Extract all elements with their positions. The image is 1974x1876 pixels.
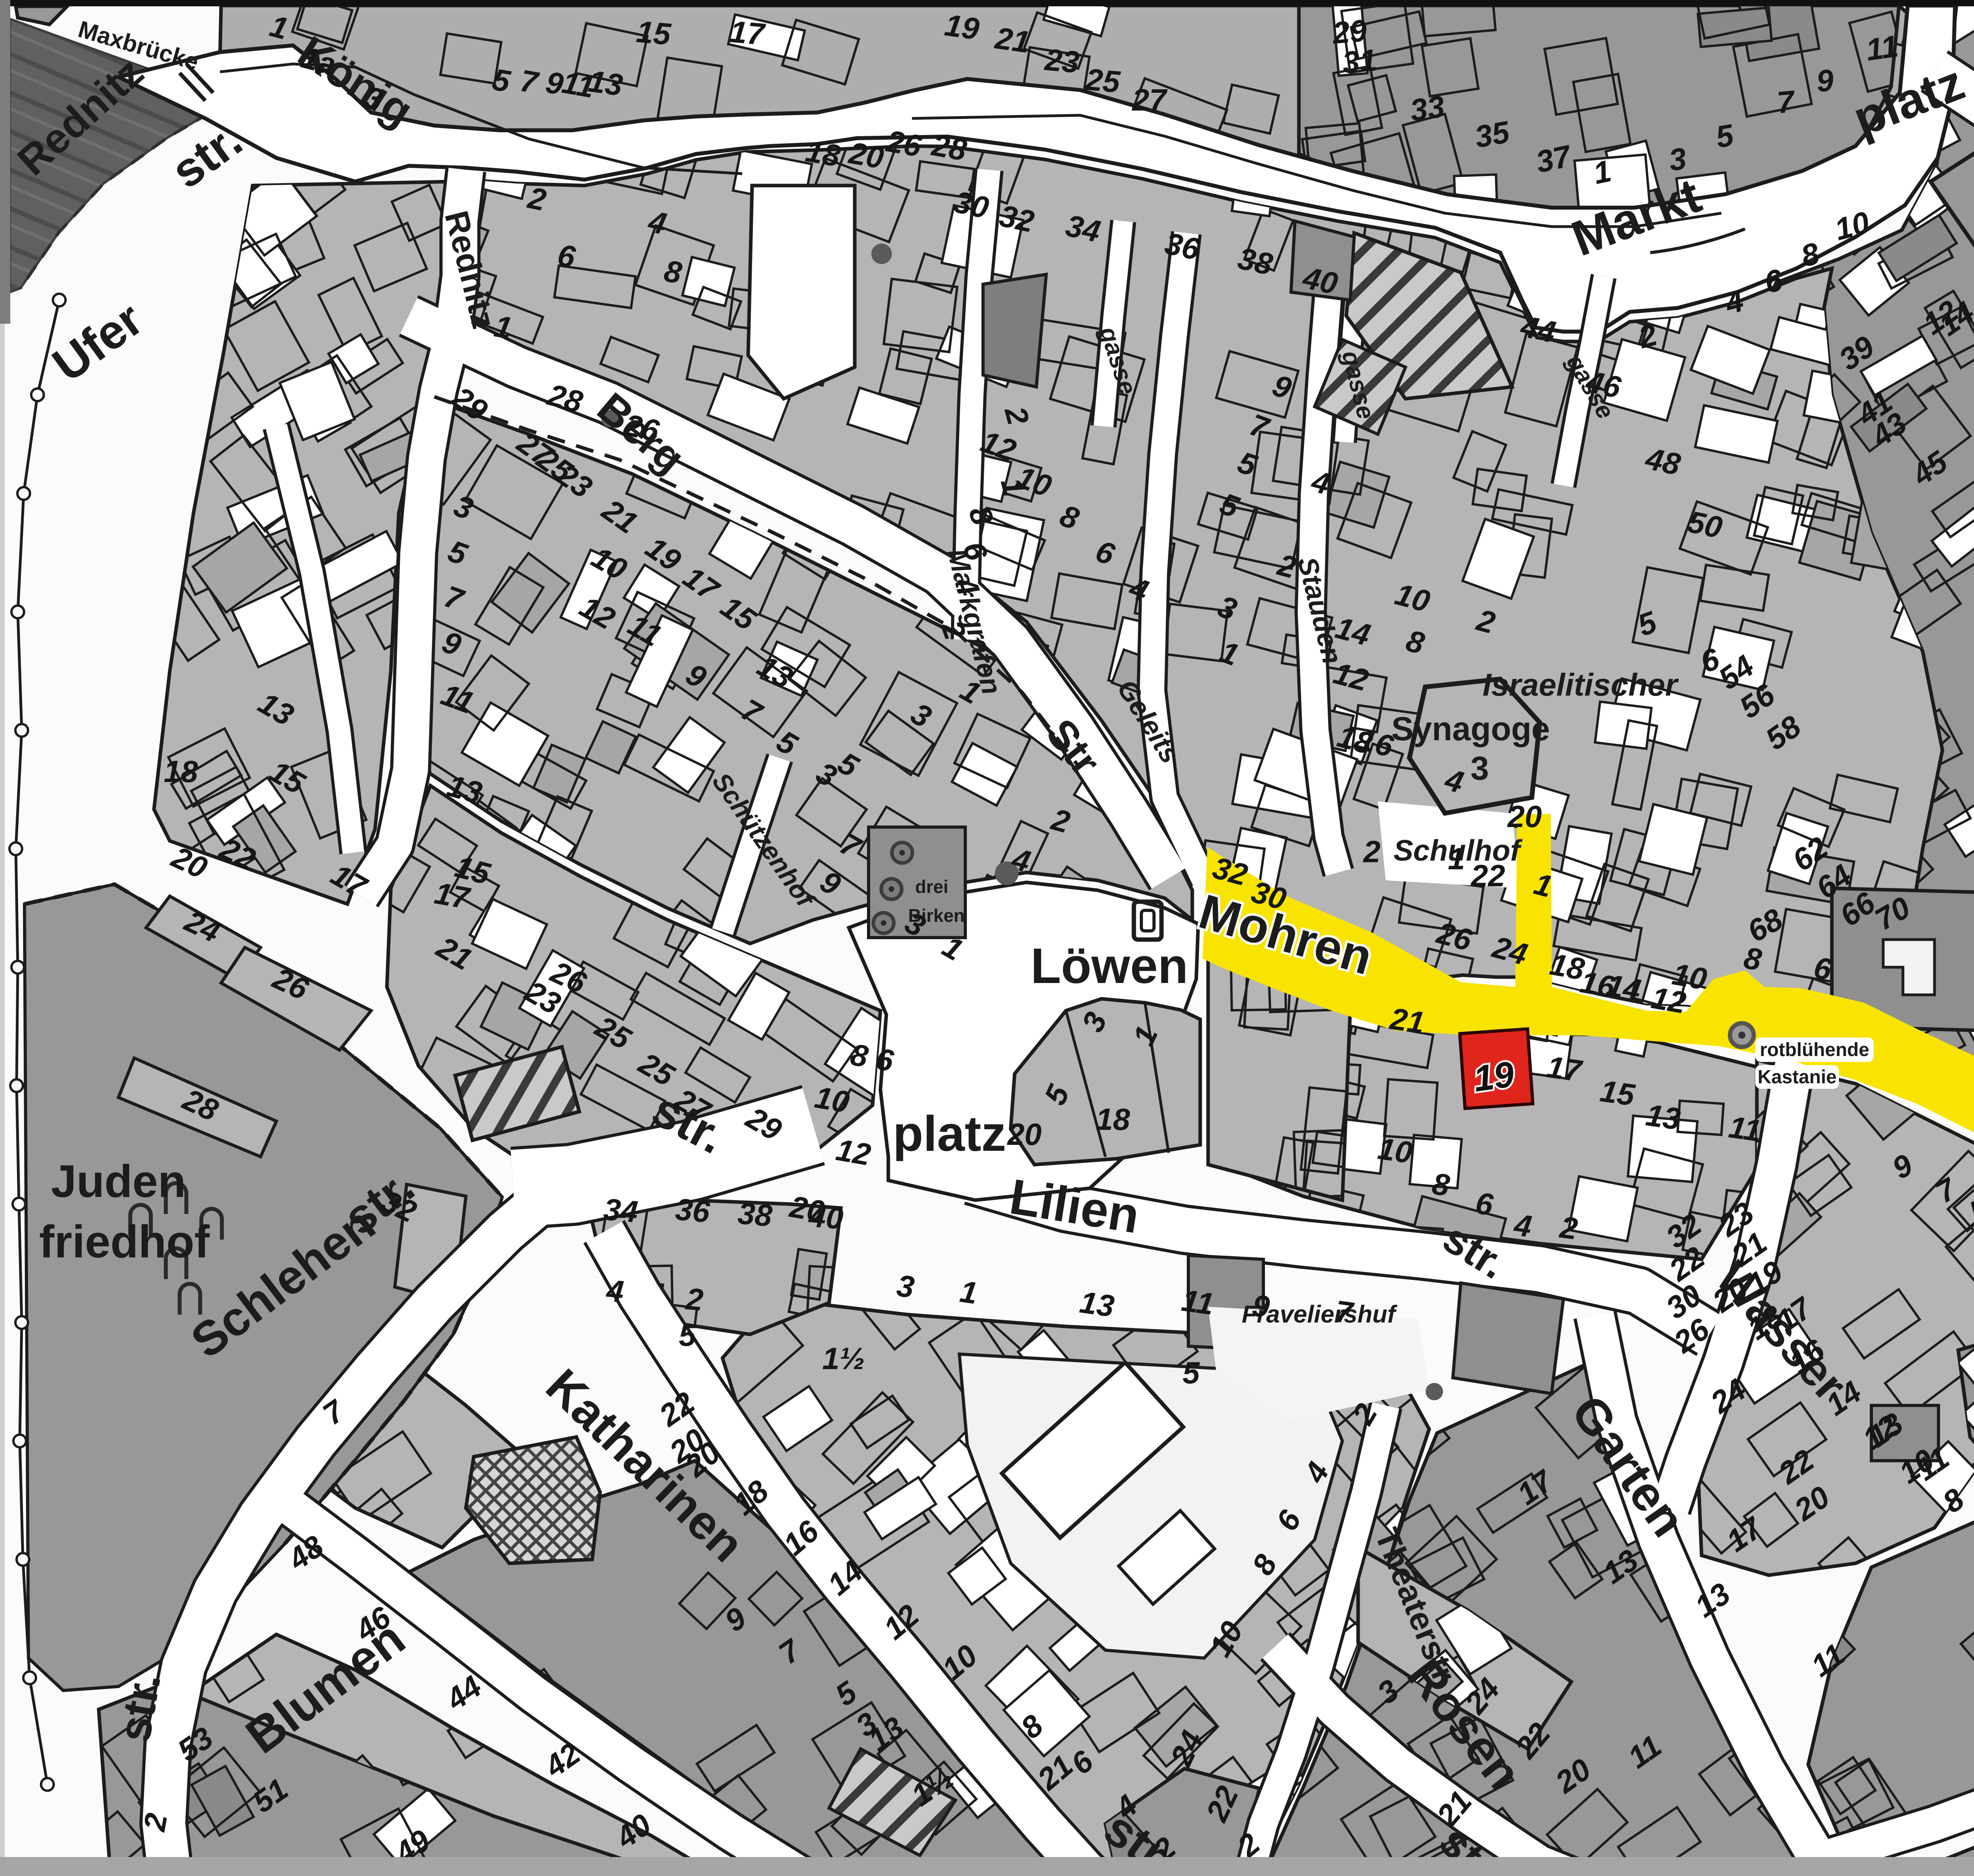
svg-text:Juden: Juden — [51, 1156, 186, 1207]
svg-text:4: 4 — [604, 1273, 625, 1309]
svg-text:2: 2 — [684, 1281, 705, 1317]
svg-text:26: 26 — [883, 123, 924, 163]
svg-text:9: 9 — [1815, 62, 1835, 98]
svg-text:34: 34 — [602, 1191, 639, 1229]
svg-text:5: 5 — [679, 1318, 696, 1353]
svg-text:13: 13 — [1644, 1097, 1683, 1137]
svg-text:Synagoge: Synagoge — [1391, 710, 1550, 747]
svg-text:20: 20 — [846, 135, 886, 175]
svg-text:17: 17 — [728, 14, 767, 52]
svg-text:3: 3 — [1471, 750, 1489, 787]
svg-text:21: 21 — [993, 20, 1032, 59]
svg-text:31: 31 — [1341, 42, 1378, 80]
svg-text:18: 18 — [803, 133, 843, 174]
svg-text:Kastanie: Kastanie — [1758, 1067, 1837, 1088]
svg-text:18: 18 — [1096, 1102, 1130, 1137]
svg-text:23: 23 — [1043, 42, 1081, 79]
svg-text:27: 27 — [1131, 83, 1168, 117]
svg-text:30: 30 — [951, 184, 992, 225]
svg-text:10: 10 — [1376, 1131, 1415, 1170]
svg-text:platz: platz — [893, 1106, 1006, 1161]
svg-text:Israelitischer: Israelitischer — [1482, 667, 1679, 702]
svg-text:33: 33 — [1408, 89, 1447, 128]
svg-text:35: 35 — [1472, 114, 1512, 154]
svg-text:13: 13 — [1078, 1285, 1116, 1324]
svg-text:14: 14 — [1604, 968, 1644, 1008]
svg-text:friedhof: friedhof — [39, 1216, 210, 1267]
svg-text:10: 10 — [1670, 957, 1709, 997]
svg-text:15: 15 — [635, 14, 673, 51]
svg-text:15: 15 — [1598, 1073, 1638, 1112]
svg-text:11: 11 — [1727, 1109, 1763, 1148]
svg-text:20: 20 — [1007, 1117, 1042, 1152]
svg-text:2: 2 — [1362, 834, 1380, 869]
svg-text:36: 36 — [674, 1191, 711, 1229]
svg-text:25: 25 — [1083, 62, 1122, 99]
svg-text:11: 11 — [1180, 1283, 1216, 1321]
svg-text:17: 17 — [1545, 1049, 1585, 1089]
svg-text:28: 28 — [929, 127, 969, 167]
svg-text:20: 20 — [1507, 799, 1542, 834]
svg-text:1½: 1½ — [822, 1341, 865, 1376]
svg-text:1: 1 — [1448, 841, 1465, 876]
svg-text:20: 20 — [786, 1189, 827, 1229]
svg-text:22: 22 — [1470, 858, 1505, 893]
svg-text:19: 19 — [1471, 1054, 1517, 1099]
svg-text:21: 21 — [1387, 1001, 1427, 1040]
svg-text:rotblühende: rotblühende — [1760, 1039, 1869, 1060]
svg-text:drei: drei — [915, 876, 948, 897]
svg-text:Löwen: Löwen — [1031, 938, 1188, 994]
svg-text:5: 5 — [1182, 1355, 1200, 1390]
svg-text:19: 19 — [943, 8, 982, 47]
svg-text:38: 38 — [736, 1195, 774, 1233]
svg-text:11: 11 — [1864, 28, 1900, 67]
svg-text:10: 10 — [812, 1080, 852, 1120]
svg-text:18: 18 — [164, 754, 198, 789]
svg-text:50: 50 — [1685, 504, 1725, 545]
svg-text:13: 13 — [586, 64, 625, 103]
svg-text:32: 32 — [996, 198, 1037, 239]
svg-text:34: 34 — [1063, 208, 1103, 249]
svg-text:12: 12 — [833, 1132, 873, 1172]
